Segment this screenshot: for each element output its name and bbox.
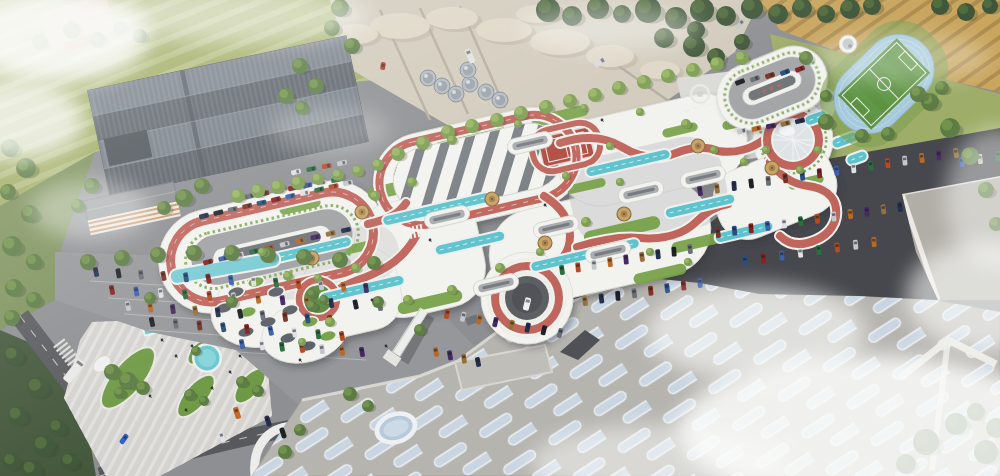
scene-canvas: Aerial rendering of a mixed-use complex … (0, 0, 1000, 476)
sunlight-haze (0, 0, 1000, 476)
aerial-render: Aerial rendering of a mixed-use complex … (0, 0, 1000, 476)
